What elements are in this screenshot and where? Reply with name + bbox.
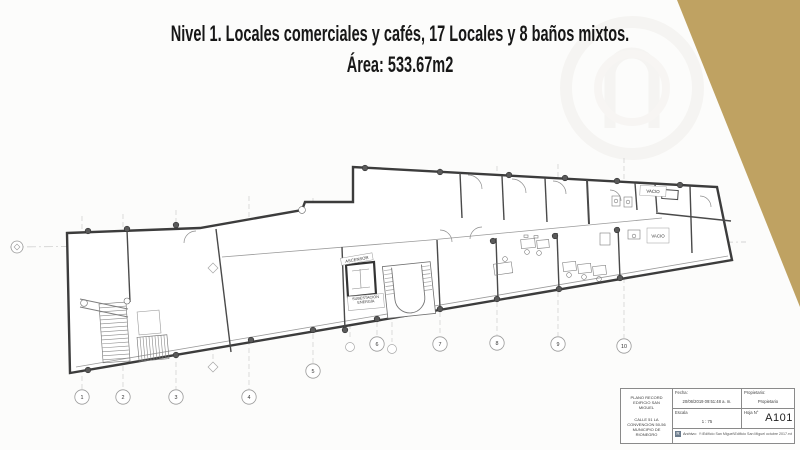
svg-text:8: 8: [496, 341, 499, 347]
escala-value: 1 : 75: [675, 419, 739, 424]
fecha-cell: Fecha: 20/06/2019 09:51:48 a. m.: [673, 389, 742, 408]
svg-text:5: 5: [312, 369, 315, 375]
grid-bubble-2: 2: [116, 390, 130, 404]
archivo-path: Y:\Edificio San Miguel\Edificio San Migu…: [699, 432, 792, 436]
grid-bubble-10: 10: [617, 339, 631, 353]
stairs-main: [382, 262, 435, 319]
svg-text:7: 7: [439, 342, 442, 348]
title-line-2: Área: 533.67m2: [136, 49, 664, 80]
grid-bubble-4: 4: [242, 390, 256, 404]
vacio-label-top: VACIO: [640, 185, 666, 196]
svg-text:1: 1: [81, 395, 84, 401]
title-block-project: PLANO RECORD EDIFICIO SAN MIGUEL CALLE 5…: [621, 389, 673, 443]
subestacion-text: SUBESTACIÓN ENERGÍA: [347, 294, 384, 306]
sheet-number: A101: [764, 409, 794, 426]
fecha-label: Fecha:: [675, 390, 739, 395]
grid-bubble-5: 5: [306, 364, 320, 378]
archivo-cell: R Archivo: Y:\Edificio San Miguel\Edific…: [673, 429, 794, 439]
project-name: PLANO RECORD EDIFICIO SAN MIGUEL: [630, 395, 662, 410]
axis-bubble-left: [11, 241, 23, 253]
grid-bubble-9: 9: [551, 337, 565, 351]
project-address: CALLE 51 LA CONVENCION 50-56 MUNICIPIO D…: [627, 417, 665, 437]
slide-title: Nivel 1. Locales comerciales y cafés, 17…: [0, 18, 800, 80]
fecha-value: 20/06/2019 09:51:48 a. m.: [675, 399, 739, 404]
vacio-top-text: VACIO: [646, 188, 660, 194]
escala-label: Escala: [675, 410, 739, 415]
propietario-value: Propietario: [744, 399, 792, 404]
svg-text:6: 6: [376, 342, 379, 348]
hoja-label: Hoja N°: [742, 409, 764, 426]
svg-text:3: 3: [175, 395, 178, 401]
propietario-label: Propietario:: [744, 390, 792, 395]
grid-bubble-3: 3: [169, 390, 183, 404]
svg-text:2: 2: [122, 395, 125, 401]
archivo-label: Archivo:: [683, 432, 697, 436]
presentation-slide: Nivel 1. Locales comerciales y cafés, 17…: [0, 0, 800, 450]
grid-bubble-6: 6: [370, 337, 384, 351]
svg-text:9: 9: [557, 342, 560, 348]
title-block: PLANO RECORD EDIFICIO SAN MIGUEL CALLE 5…: [620, 388, 795, 444]
propietario-cell: Propietario: Propietario: [742, 389, 794, 408]
grid-bubble-1: 1: [75, 390, 89, 404]
svg-text:4: 4: [248, 395, 251, 401]
grid-bubble-8: 8: [490, 336, 504, 350]
vacio-right-text: VACIO: [651, 234, 665, 239]
hoja-cell: Hoja N° A101: [742, 409, 794, 426]
revit-file-icon: R: [675, 431, 681, 437]
grid-bubble-7: 7: [433, 337, 447, 351]
svg-text:10: 10: [621, 344, 627, 350]
vacio-label-right: VACIO: [647, 228, 669, 243]
escala-cell: Escala 1 : 75: [673, 409, 742, 428]
title-line-1: Nivel 1. Locales comerciales y cafés, 17…: [136, 18, 664, 49]
